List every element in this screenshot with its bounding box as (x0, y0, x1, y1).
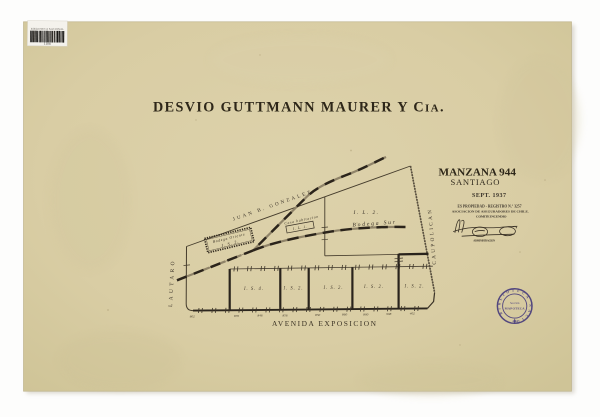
svg-text:I. S. 2.: I. S. 2. (403, 285, 424, 290)
svg-text:BIBLIOTECA NACIONAL: BIBLIOTECA NACIONAL (31, 28, 65, 31)
svg-text:COMITE INCENDIO: COMITE INCENDIO (476, 214, 507, 218)
svg-text:SANTIAGO: SANTIAGO (451, 177, 500, 187)
svg-text:1108: 1108 (44, 42, 51, 46)
svg-text:402: 402 (410, 312, 415, 316)
svg-text:860: 860 (342, 313, 347, 317)
svg-text:I. S. 2.: I. S. 2. (282, 287, 303, 292)
svg-text:870: 870 (234, 314, 239, 318)
svg-text:DESVIO GUTTMANN MAURER Y CIA.: DESVIO GUTTMANN MAURER Y CIA. (153, 100, 444, 116)
svg-text:890: 890 (363, 312, 368, 316)
svg-text:SEPT. 1937: SEPT. 1937 (472, 193, 506, 199)
svg-text:I. L. 2.: I. L. 2. (353, 210, 379, 216)
svg-text:ADMINISTRACION: ADMINISTRACION (473, 240, 495, 243)
svg-text:MAPOTECA: MAPOTECA (505, 306, 526, 310)
svg-text:802: 802 (190, 315, 195, 319)
svg-text:ES PROPIEDAD - REGISTRO N.° 32: ES PROPIEDAD - REGISTRO N.° 3257 (458, 205, 522, 209)
svg-text:846: 846 (257, 314, 262, 318)
svg-text:908: 908 (386, 312, 391, 316)
svg-text:I. S. 2.: I. S. 2. (322, 286, 343, 291)
svg-text:ASOCIACION DE ASEGURADORES DE: ASOCIACION DE ASEGURADORES DE CHILE. (452, 210, 529, 214)
svg-text:Sección: Sección (510, 301, 520, 305)
svg-text:AVENIDA EXPOSICION: AVENIDA EXPOSICION (272, 319, 377, 328)
svg-text:850: 850 (315, 313, 320, 317)
svg-text:I. S. 2.: I. S. 2. (363, 285, 384, 290)
svg-text:856: 856 (282, 313, 287, 317)
svg-text:I. S. 4.: I. S. 4. (243, 287, 264, 292)
